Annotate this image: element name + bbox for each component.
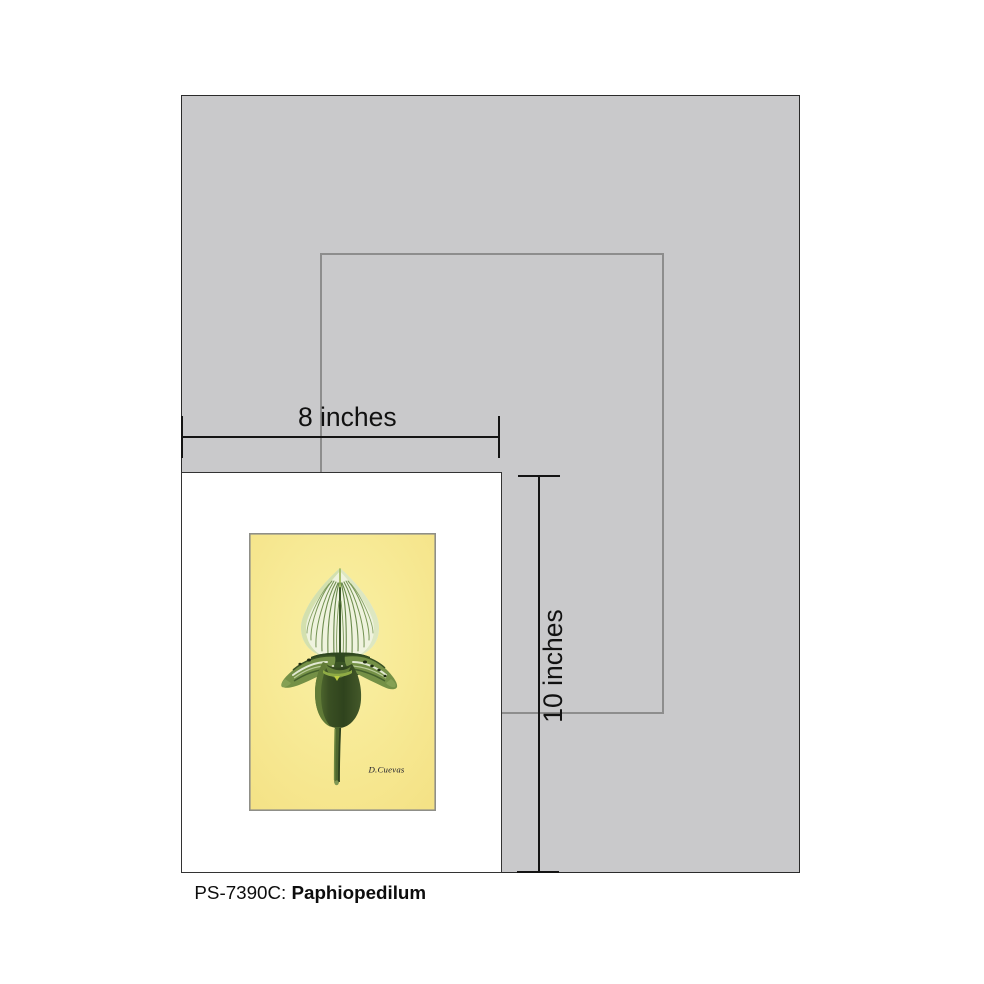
svg-text:D.Cuevas: D.Cuevas [367,764,404,774]
